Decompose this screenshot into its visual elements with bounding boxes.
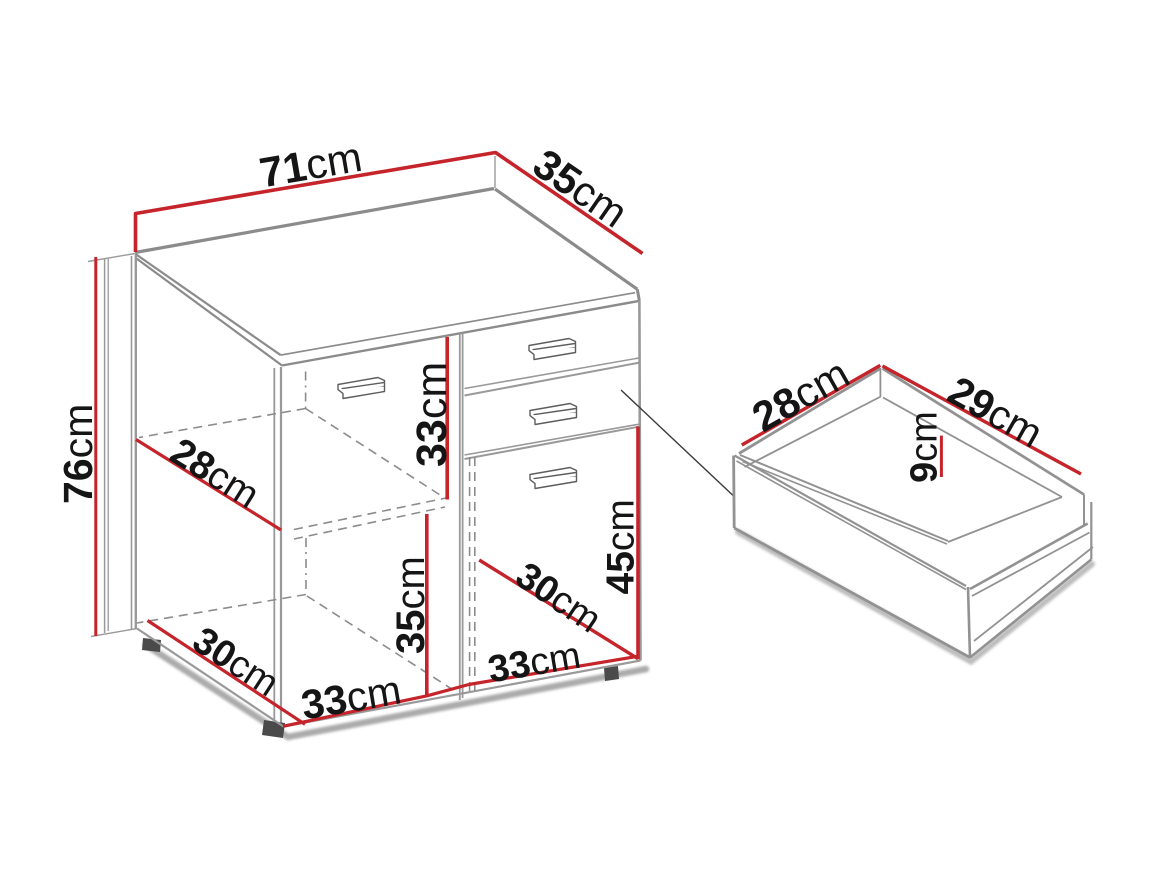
svg-text:35cm: 35cm [389,556,433,654]
svg-text:29cm: 29cm [941,367,1051,456]
svg-text:30cm: 30cm [185,619,286,705]
svg-text:71cm: 71cm [256,133,365,197]
svg-text:33cm: 33cm [408,362,456,467]
svg-text:9cm: 9cm [904,411,946,483]
svg-text:28cm: 28cm [163,430,267,517]
svg-text:45cm: 45cm [600,499,643,594]
svg-text:76cm: 76cm [55,404,101,504]
svg-text:28cm: 28cm [744,349,857,440]
svg-text:30cm: 30cm [508,555,609,642]
